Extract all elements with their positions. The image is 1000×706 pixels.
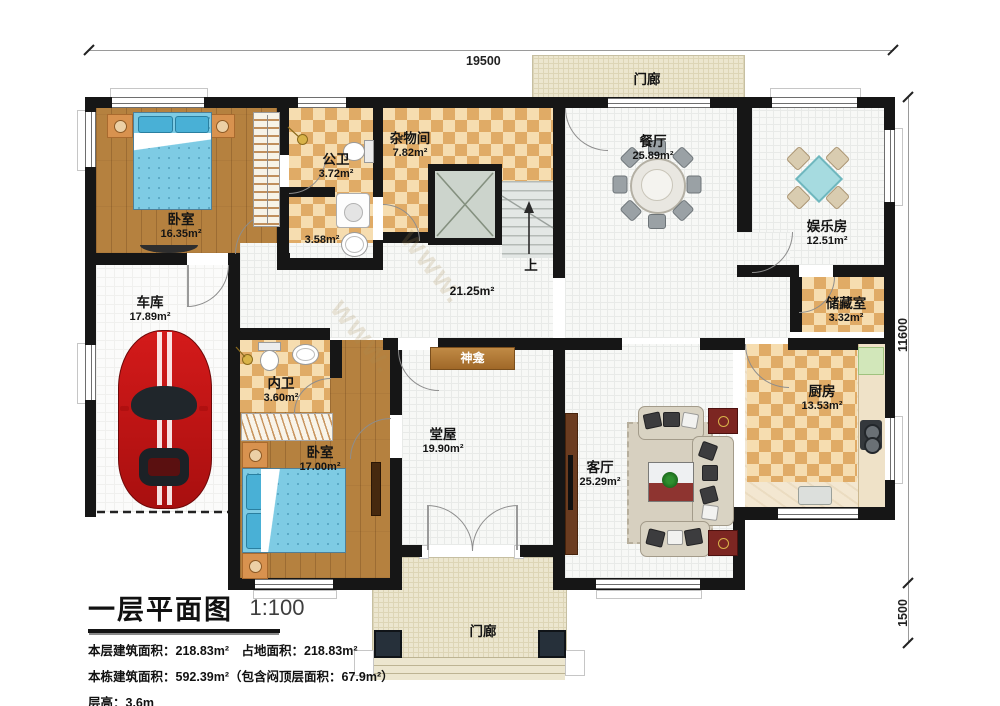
room-label-dining: 餐厅25.89m²: [633, 134, 674, 163]
wall: [700, 338, 745, 350]
room-label-living: 客厅25.29m²: [580, 460, 621, 489]
mirror: [199, 406, 208, 411]
burner: [864, 437, 881, 454]
ceiling-lamp: [297, 134, 308, 145]
info-area-line1: 本层建筑面积：218.83m² 占地面积：218.83m²: [88, 640, 394, 659]
window: [85, 345, 96, 400]
window: [298, 97, 346, 108]
nightstand: [107, 114, 133, 138]
chair: [648, 214, 666, 229]
shrine-label: 神龛: [431, 348, 514, 369]
sofa: [638, 406, 704, 440]
wall: [553, 97, 565, 278]
window: [884, 130, 895, 202]
room-label-bath-lobby: 3.58m²: [305, 234, 340, 247]
window-sill: [596, 590, 702, 599]
toilet: [260, 350, 279, 371]
stairs-up-label: 上: [524, 258, 538, 274]
wall: [737, 97, 752, 232]
wash-basin: [341, 232, 368, 257]
dimension-line-top: [88, 50, 894, 51]
door-leaf: [516, 505, 518, 550]
wall: [373, 240, 383, 270]
window-sill: [894, 416, 903, 484]
mirror: [120, 406, 129, 411]
bed-sheet: [261, 469, 283, 552]
room-label-kitchen: 厨房13.53m²: [802, 384, 843, 413]
wall: [228, 253, 240, 590]
wall: [390, 545, 422, 557]
elevator: [428, 164, 502, 245]
room-label-bedroom2: 卧室17.00m²: [300, 445, 341, 474]
kitchen-sink: [798, 486, 832, 505]
door-leaf: [187, 265, 189, 306]
bed: [242, 468, 346, 553]
title-block: 一层平面图 1:100 本层建筑面积：218.83m² 占地面积：218.83m…: [88, 588, 394, 706]
tv: [568, 455, 573, 510]
dimension-right-main: 11600: [896, 305, 910, 365]
bed-sheet: [134, 133, 211, 153]
cutting-board: [858, 347, 884, 375]
porch-pillar: [538, 630, 566, 658]
sofa: [640, 521, 710, 557]
door-leaf: [427, 505, 429, 550]
room-label-inner-bath: 内卫3.60m²: [264, 376, 299, 405]
window: [596, 579, 700, 589]
side-table: [708, 408, 738, 434]
ceiling-lamp: [242, 354, 253, 365]
room-label-public-bath: 公卫3.72m²: [319, 152, 354, 181]
chair: [687, 176, 702, 194]
shrine: 神龛: [430, 347, 515, 370]
bed: [133, 112, 212, 210]
wall: [520, 545, 565, 557]
scale-label: 1:100: [249, 595, 304, 621]
wall: [330, 340, 342, 378]
window: [772, 97, 857, 108]
porch-sill: [565, 650, 585, 676]
wall: [277, 258, 383, 270]
toilet-tank: [364, 140, 374, 163]
room-label-porch-bottom: 门廊: [470, 624, 497, 640]
side-table: [708, 530, 738, 556]
title-underline: [88, 629, 280, 633]
window-sill: [894, 128, 903, 206]
room-label-porch-top: 门廊: [634, 72, 661, 88]
nightstand: [242, 553, 268, 579]
wall: [390, 458, 402, 590]
wash-basin: [292, 344, 319, 365]
window: [778, 508, 858, 519]
porch-steps: [372, 657, 565, 680]
dimension-line-right: [908, 97, 909, 643]
wall: [373, 97, 383, 197]
windshield: [131, 386, 197, 420]
room-label-hall: 21.25m²: [450, 284, 495, 298]
nightstand: [209, 114, 235, 138]
closet: [241, 413, 333, 441]
page-title: 一层平面图: [88, 588, 233, 627]
wardrobe: [253, 112, 280, 227]
pillow: [175, 116, 209, 133]
window: [884, 418, 895, 480]
tv-panel: [371, 462, 381, 516]
car: [118, 330, 210, 507]
dining-table-inner: [641, 169, 673, 201]
dimension-right-porch: 1500: [896, 583, 910, 643]
washing-machine: [336, 193, 370, 228]
room-label-entertainment: 娱乐房12.51m²: [807, 219, 848, 248]
info-area-line2: 本栋建筑面积：592.39m²（包含闷顶层面积：67.9m²）: [88, 666, 394, 685]
wall: [833, 265, 884, 277]
room-label-bedroom1: 卧室16.35m²: [161, 212, 202, 241]
stairs: [502, 181, 553, 258]
window: [85, 112, 96, 167]
room-label-storage: 储藏室3.32m²: [826, 296, 867, 325]
room-label-main-hall: 堂屋19.90m²: [423, 427, 464, 456]
chair: [613, 176, 628, 194]
window: [608, 98, 710, 108]
wall: [228, 328, 330, 340]
room-label-utility: 杂物间7.82m²: [390, 131, 431, 160]
floor-plan: 神龛 19500 11600 1500 卧室16.35m² 车库17.89m² …: [0, 0, 1000, 706]
info-floor-height: 层高：3.6m: [88, 692, 394, 706]
window: [112, 97, 204, 108]
dimension-top: 19500: [466, 54, 501, 68]
nightstand: [242, 442, 268, 468]
plant: [662, 472, 678, 488]
room-label-garage: 车库17.89m²: [130, 295, 171, 324]
wall: [85, 253, 187, 265]
pillow: [138, 116, 173, 133]
sofa: [692, 436, 734, 526]
